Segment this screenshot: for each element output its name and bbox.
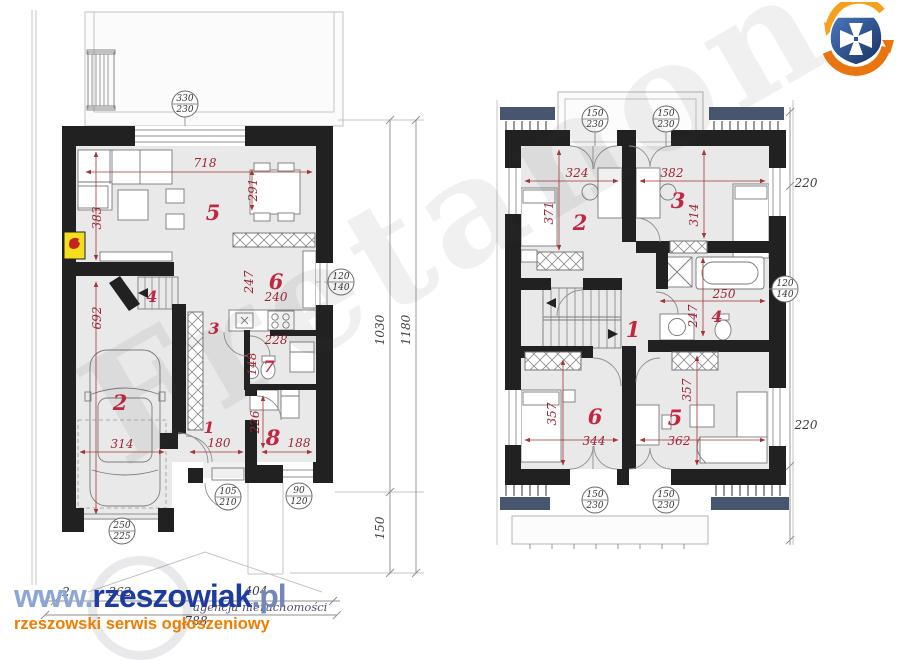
uf-dim-220-bottom: 220	[794, 418, 818, 432]
coffee-table	[118, 190, 148, 220]
agency-logo	[816, 2, 898, 84]
circle-150-230-bot2: 150 230	[653, 487, 679, 513]
gf-room-7: 7	[263, 357, 274, 376]
site-url-tld: .pl	[251, 578, 285, 614]
site-tagline: rzeszowski serwis ogłoszeniowy	[14, 616, 286, 633]
circle-90-120: 90 120	[286, 483, 312, 509]
svg-text:230: 230	[656, 120, 674, 130]
uf-side-dims: 220 220	[786, 107, 818, 545]
gf-dim-188: 188	[288, 436, 311, 450]
circle-105-210: 105 210	[215, 484, 241, 510]
circle-150-230-bot1: 150 230	[582, 487, 608, 513]
fireplace	[64, 232, 85, 259]
gf-room-3: 3	[208, 319, 219, 338]
wardrobe-room6	[525, 352, 581, 370]
uf-room-4: 4	[711, 307, 722, 326]
uf-dim-371: 371	[542, 202, 556, 225]
uf-room-6: 6	[588, 404, 603, 429]
uf-dim-250: 250	[712, 287, 736, 301]
site-url-name: rzeszowiak	[92, 578, 251, 614]
gf-dim-226: 226	[248, 410, 262, 434]
kitchen-cabinets	[233, 233, 315, 247]
ground-floor-plan: 718 291 383 692 314 247 240 228 148 180 …	[62, 126, 333, 592]
gf-room-5: 5	[206, 200, 221, 225]
svg-text:210: 210	[218, 498, 236, 508]
circle-250-225: 250 225	[109, 518, 135, 544]
uf-dim-362: 362	[668, 434, 691, 448]
circle-120-140-uf: 120 140	[772, 276, 798, 302]
svg-text:150: 150	[657, 109, 674, 119]
wardrobe-niche	[670, 241, 707, 253]
svg-text:140: 140	[776, 290, 793, 300]
uf-room-2: 2	[572, 210, 588, 235]
wardrobe-room5	[672, 352, 718, 370]
site-url-www: www.	[14, 578, 92, 614]
floorplan-page: { "branding": { "www": "www.", "name": "…	[0, 0, 900, 655]
gf-dim-314: 314	[111, 437, 134, 451]
gf-dim-383: 383	[90, 206, 104, 229]
gf-room-4: 4	[146, 287, 157, 306]
gf-dim-692: 692	[90, 307, 104, 330]
svg-text:105: 105	[219, 487, 236, 497]
svg-text:120: 120	[332, 272, 349, 282]
gf-dim-148: 148	[245, 352, 259, 375]
gf-dim-228: 228	[264, 333, 288, 347]
uf-room-3: 3	[671, 188, 686, 213]
circle-120-140-gf: 120 140	[328, 269, 354, 295]
svg-text:230: 230	[175, 105, 193, 115]
pouf	[166, 189, 184, 203]
uf-dim-357r: 357	[680, 378, 694, 401]
svg-text:150: 150	[657, 490, 674, 500]
roof-window	[709, 107, 784, 120]
svg-text:250: 250	[112, 521, 130, 531]
uf-dim-344: 344	[583, 434, 606, 448]
dim-1180: 1180	[399, 314, 413, 345]
tv-sideboard	[100, 252, 172, 261]
site-branding: www.rzeszowiak.pl rzeszowski serwis ogło…	[14, 580, 286, 633]
gf-room-1: 1	[203, 418, 214, 437]
uf-dim-324: 324	[566, 166, 589, 180]
uf-dim-357l: 357	[545, 402, 559, 425]
svg-text:330: 330	[176, 94, 193, 104]
terrace	[85, 12, 343, 126]
svg-text:230: 230	[585, 501, 603, 511]
kitchen-counter	[229, 310, 316, 331]
gf-room-2: 2	[112, 390, 128, 415]
gf-dim-718: 718	[194, 156, 217, 170]
site-url: www.rzeszowiak.pl	[14, 580, 286, 612]
roof-window	[500, 497, 550, 510]
pouf	[166, 214, 184, 229]
gf-dim-291: 291	[246, 179, 260, 203]
roof-window	[500, 107, 555, 120]
dim-1030: 1030	[373, 314, 387, 345]
uf-room-5: 5	[668, 405, 683, 430]
gf-dim-180: 180	[208, 436, 231, 450]
svg-text:120: 120	[776, 279, 793, 289]
uf-dim-247: 247	[686, 304, 700, 328]
gf-room-8: 8	[265, 425, 281, 450]
dormer-bottom	[512, 516, 708, 549]
svg-text:230: 230	[656, 501, 674, 511]
uf-dim-382: 382	[661, 166, 684, 180]
gf-dim-247: 247	[242, 270, 256, 294]
svg-text:150: 150	[586, 109, 603, 119]
property-boundary	[32, 10, 36, 585]
svg-text:225: 225	[112, 532, 130, 542]
dim-150: 150	[373, 516, 387, 539]
svg-text:150: 150	[586, 490, 603, 500]
uf-dim-220-top: 220	[794, 176, 818, 190]
wardrobe-room2	[537, 252, 583, 270]
svg-text:230: 230	[585, 120, 603, 130]
kitchen-tall-cabinet	[303, 251, 316, 308]
gf-room-6: 6	[269, 269, 284, 294]
uf-dim-314: 314	[687, 204, 701, 227]
upper-floor-plan: 324 382 371 314 250 247 357 344 362 357 …	[497, 92, 818, 549]
roof-window	[711, 497, 789, 510]
uf-room-1: 1	[626, 317, 641, 342]
svg-text:120: 120	[290, 497, 307, 507]
svg-text:140: 140	[332, 283, 349, 293]
hall-wardrobe	[188, 312, 203, 430]
svg-text:90: 90	[293, 486, 305, 496]
